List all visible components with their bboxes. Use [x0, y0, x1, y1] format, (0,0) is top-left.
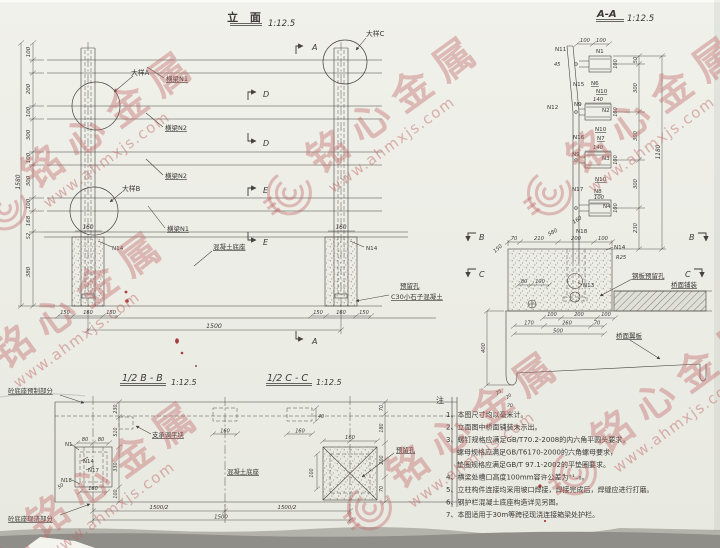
- part-label: N18: [61, 478, 72, 484]
- beam-label: N4: [603, 204, 611, 210]
- dim-label: 230: [633, 222, 639, 233]
- part-label: N11: [555, 47, 567, 53]
- dim-label: 80: [521, 279, 527, 285]
- note-item: 7、本图适用于30m等跨径现浇连接箱梁处护栏。: [446, 510, 599, 519]
- dim-label: R25: [616, 255, 627, 261]
- hole-fill-label: C30小石子混凝土: [391, 292, 443, 301]
- base-label: 混凝土底座: [213, 242, 246, 251]
- dim-label: 200: [26, 83, 32, 94]
- dim-label: 160: [88, 486, 98, 492]
- dim-label: 160: [295, 429, 305, 435]
- section-marker-a: A: [311, 337, 317, 346]
- section-marker-b: B: [479, 233, 485, 242]
- engineering-drawing: 立 面1:12.51580100200100300100300100168523…: [0, 0, 720, 548]
- dim-label: 70: [379, 405, 385, 411]
- part-label: N18: [576, 229, 588, 235]
- dim-label: 20: [505, 392, 513, 400]
- dim-label: 300: [633, 130, 639, 141]
- dim-label: 300: [26, 175, 32, 186]
- view-scale-bb: 1:12.5: [171, 378, 197, 387]
- dim-label: 400: [481, 342, 487, 353]
- part-label-n14: N14: [614, 245, 626, 251]
- dim-label: 70: [379, 486, 385, 492]
- part-label: N14: [83, 459, 94, 465]
- part-label: N17: [88, 468, 99, 474]
- dim-label: 150: [359, 310, 369, 316]
- dim-label: 70: [594, 321, 600, 327]
- dim-label: 100: [596, 38, 607, 44]
- section-marker-d: D: [263, 90, 269, 99]
- dim-label: 100: [26, 152, 32, 163]
- elevation-hidden-lines: [85, 50, 344, 296]
- dim-label: 180: [379, 423, 385, 432]
- dim-label: 100: [535, 279, 545, 285]
- dim-label: 100: [580, 38, 591, 44]
- section-cut-markers: [248, 46, 303, 339]
- detail-label-b: 大样B: [122, 184, 141, 193]
- view-title-cc: 1/2 C - C: [267, 373, 308, 384]
- plate-hole-label: 钢板预留孔: [632, 271, 665, 280]
- beam-label: N3: [602, 156, 610, 162]
- dim-label: 100: [601, 312, 611, 318]
- dim-label: 160: [220, 429, 230, 435]
- dim-label: 160: [572, 215, 584, 226]
- base-label: 混凝土底座: [227, 467, 260, 476]
- part-label: N16: [573, 135, 585, 141]
- hole-label: 预留孔: [396, 445, 416, 454]
- note-item: 垫圈规格应满足GB/T 97.1-2002的平垫圈要求。: [457, 460, 610, 469]
- dim-label: 100: [594, 195, 605, 201]
- note-item: 1、本图尺寸均以毫米计。: [446, 410, 527, 419]
- section-marker-a: A: [311, 43, 317, 52]
- scanned-drawing-page: 立 面1:12.51580100200100300100300100168523…: [0, 0, 720, 548]
- section-marker-e: E: [263, 238, 269, 247]
- part-label: N9: [574, 102, 582, 108]
- section-marker-c: C: [479, 270, 485, 279]
- dim-label: 200: [571, 236, 582, 242]
- dim-label: 200: [574, 312, 584, 318]
- scan-bottom-edge: [0, 527, 720, 548]
- weld-size: 45: [554, 62, 560, 68]
- hole-label: 预留孔: [400, 281, 420, 290]
- cast-label: 砼底座现浇部分: [8, 514, 53, 523]
- part-label: N9: [572, 152, 580, 158]
- beam-label: N2: [602, 108, 610, 114]
- part-label: N15: [573, 82, 585, 88]
- rail-label: 横梁N1: [167, 224, 189, 233]
- dim-label: 25: [495, 388, 503, 396]
- dim-label: 160: [83, 310, 93, 316]
- part-label: N7: [597, 136, 605, 142]
- dim-overall-height: 1580: [15, 174, 22, 189]
- dim-label: 100: [26, 46, 32, 57]
- scan-top-edge: [0, 0, 720, 3]
- part-label-n13: N13: [583, 283, 595, 289]
- dim-label: 200: [379, 455, 385, 464]
- dim-label: 300: [633, 82, 639, 93]
- dim-overall: 1180: [656, 144, 662, 159]
- dim-label: 170: [524, 321, 534, 327]
- section-marker-c: C: [685, 270, 691, 279]
- leveling-label: 支承调平块: [152, 430, 185, 439]
- section-bb-cc-centerlines: [93, 396, 350, 520]
- section-marker-d: D: [263, 139, 269, 148]
- dim-label: 160: [345, 435, 356, 441]
- part-label-n14: N14: [366, 246, 378, 252]
- note-item: 5、立柱构件连接均采用坡口焊接，焊接完成后，焊缝应进行打磨。: [446, 485, 653, 494]
- section-marker-b: B: [689, 233, 695, 242]
- dim-label: 80: [98, 437, 104, 443]
- note-item: 3、螺钉规格应满足GB/T70.2-2008的内六角平圆头要求，: [446, 435, 629, 444]
- dim-label: 1500/2: [278, 505, 298, 511]
- dim-label: 160: [335, 225, 346, 231]
- dim-label: 260: [562, 321, 572, 327]
- part-label: N10: [595, 127, 607, 133]
- note-item: 4、横梁处槽口高度100mm容许公差为⁺¹₋₀。: [446, 473, 588, 482]
- view-title-elevation: 立 面: [227, 10, 265, 24]
- dim-label: 160: [82, 225, 93, 231]
- wing-label: 桥面翼板: [616, 331, 643, 340]
- dim-label: 140: [593, 97, 604, 103]
- view-scale-aa: 1:12.5: [627, 14, 654, 24]
- note-item: 6、钢护栏混凝土底座构造详见另图。: [446, 498, 562, 507]
- dim-label: 80: [82, 437, 88, 443]
- section-marker-e: E: [263, 186, 269, 195]
- beam-label: N1: [596, 49, 604, 55]
- dim-label: 100: [613, 107, 619, 117]
- detail-label-c: 大样C: [366, 29, 385, 38]
- dim-label: 100: [113, 489, 119, 498]
- dim-label: 100: [547, 312, 557, 318]
- dim-label: 100: [309, 468, 315, 477]
- dim-label: 160: [336, 310, 346, 316]
- dim-label: 40: [318, 414, 324, 420]
- part-label: N10: [596, 89, 608, 95]
- dim-label: 230: [113, 404, 119, 413]
- notes-header: 注: [436, 395, 444, 405]
- view-scale-elevation: 1:12.5: [268, 19, 295, 29]
- note-item: 2、立面图中桥面铺装未示出。: [446, 423, 541, 432]
- dim-label: 1500/2: [150, 505, 170, 511]
- dim-label: 100: [613, 155, 619, 165]
- scan-right-shade: [714, 0, 720, 531]
- dim-label: 100: [613, 59, 619, 69]
- dim-span: 1500: [206, 323, 222, 330]
- dim-label: 380: [26, 266, 32, 277]
- dim-label: 330: [113, 462, 119, 471]
- dim-label: 210: [534, 236, 545, 242]
- rail-label: 横梁N1: [166, 74, 188, 83]
- elevation-view: [40, 40, 436, 318]
- dim-label: 52: [26, 233, 32, 239]
- dim-label: 100: [26, 106, 32, 117]
- view-scale-cc: 1:12.5: [316, 378, 342, 387]
- pavement-label: 桥面铺装: [671, 280, 698, 289]
- dim-label: 150: [106, 310, 116, 316]
- part-label: N6: [591, 81, 599, 87]
- dim-label: 168: [26, 215, 32, 226]
- part-label: N10: [595, 177, 607, 183]
- part-label-n14: N14: [112, 246, 124, 252]
- dim-label: 100: [26, 198, 32, 209]
- rail-label: 横梁N2: [165, 123, 187, 132]
- dim-label: 140: [593, 145, 604, 151]
- dim-label: 100: [598, 236, 609, 242]
- dim-label: 50: [633, 56, 639, 63]
- dim-label: 300: [633, 178, 639, 189]
- dim-label: 150: [313, 310, 323, 316]
- dim-label: 1500: [214, 515, 228, 521]
- dim-label: 300: [26, 129, 32, 140]
- dim-label: 70: [507, 403, 513, 409]
- elevation-dimensions: [18, 41, 374, 335]
- part-label: N1: [65, 442, 72, 448]
- dim-label: 150: [492, 243, 504, 254]
- dim-label: 500: [553, 329, 564, 335]
- part-label: N17: [572, 187, 584, 193]
- view-title-bb: 1/2 B - B: [122, 373, 163, 384]
- dim-label: 510: [113, 427, 119, 436]
- elevation-centerlines: [88, 42, 341, 312]
- part-label: N12: [547, 105, 558, 111]
- view-title-aa: A-A: [596, 9, 617, 20]
- dim-label: 70: [511, 236, 518, 242]
- dim-label: 100: [613, 203, 619, 213]
- detail-label-a: 大样A: [131, 68, 150, 77]
- dim-label: 580: [547, 227, 559, 237]
- note-item: 螺母规格应满足GB/T6170-2000的六角螺母要求，: [457, 448, 617, 457]
- rail-label: 横梁N2: [165, 171, 187, 180]
- dim-label: 150: [60, 310, 70, 316]
